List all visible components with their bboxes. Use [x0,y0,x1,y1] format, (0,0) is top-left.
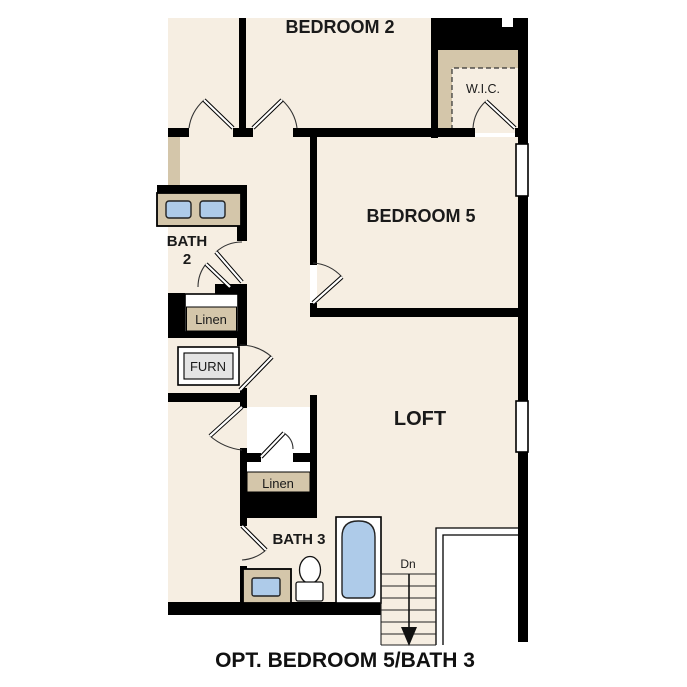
wall-top-divider [239,18,246,130]
wall-poche-strip [168,132,180,188]
wall-bedroom2-right [431,18,438,138]
bedroom2-label: BEDROOM 2 [285,17,394,37]
wall-top-mid-b [233,128,253,137]
floor-corridor [168,402,247,603]
wall-top-mid-d [515,128,528,137]
wic-shelf-top [438,50,518,68]
wall-linen2-block [240,492,317,518]
window-slit-top [502,18,513,27]
bath2-sink-left-icon [166,201,191,218]
floor-loft-upper [247,317,518,407]
bath2-vanity [157,193,241,226]
toilet-tank-icon [296,582,323,601]
wall-furn-bottom [168,393,244,402]
wall-linen2-stub-right [293,453,312,462]
wall-right-low [518,452,528,642]
bath3-sink-icon [252,578,280,596]
bath2-label-line2: 2 [183,251,191,268]
wall-bedroom5-bottom [310,308,528,317]
furnace-label: FURN [190,359,226,374]
wic-label: W.I.C. [466,82,500,96]
wall-right-top [518,18,528,145]
window-2-icon [516,401,528,452]
bath2-sink-right-icon [200,201,225,218]
linen-lower-label: Linen [262,476,294,491]
wic-shelf-left [438,68,452,130]
toilet-bowl-icon [300,557,321,584]
linen-upper-label: Linen [195,312,227,327]
door-linen2-arc [284,433,293,449]
loft-label: LOFT [394,408,446,430]
wall-top-mid-c [293,128,475,137]
wall-linen2-stub-left [240,453,261,462]
floor-plan-svg: BEDROOM 2 W.I.C. BEDROOM 5 BATH 2 Linen … [0,0,687,687]
bath3-label: BATH 3 [272,531,325,548]
wall-top-mid-a [168,128,189,137]
bath2-label-line1: BATH [167,233,208,250]
plan-caption: OPT. BEDROOM 5/BATH 3 [215,649,475,672]
bathtub-icon [342,521,375,598]
bedroom5-label: BEDROOM 5 [366,206,475,226]
wall-vanity-top [157,185,247,193]
wall-linen1-left-block [168,293,185,335]
floor-plan-page: BEDROOM 2 W.I.C. BEDROOM 5 BATH 2 Linen … [0,0,687,687]
stairs-down-label: Dn [400,557,415,571]
wall-bottom [168,602,381,615]
stair-void-fill [436,528,518,645]
wall-linen2-right [310,395,317,518]
window-1-icon [516,144,528,196]
wall-right-mid [518,195,528,402]
wall-bedroom5-left [310,128,317,265]
